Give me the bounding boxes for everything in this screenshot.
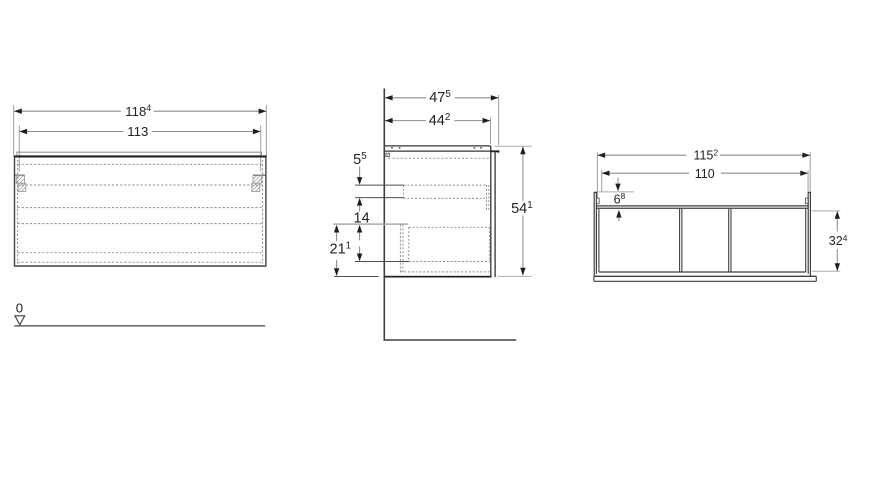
svg-text:110: 110 (695, 167, 715, 181)
svg-text:0: 0 (16, 300, 23, 315)
svg-text:14: 14 (354, 210, 370, 226)
svg-text:113: 113 (127, 124, 148, 139)
